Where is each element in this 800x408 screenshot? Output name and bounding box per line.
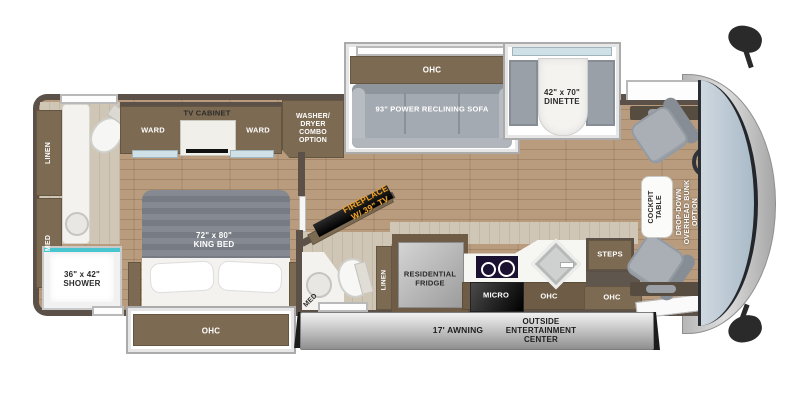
outside-entertainment-label: OUTSIDE ENTERTAINMENT CENTER (506, 317, 576, 345)
cooktop-burner (498, 260, 515, 277)
label-line: SHOWER (63, 279, 100, 288)
sink-faucet (560, 262, 574, 268)
pillow-left (149, 260, 214, 293)
bedroom-slide-window-right (230, 150, 274, 158)
cooktop-burner (481, 262, 496, 277)
label-line: TABLE (656, 191, 664, 224)
label-line: OPTION (692, 180, 700, 244)
sofa-arm-left (352, 88, 365, 144)
pillow-right (217, 260, 282, 293)
nightstand-left (128, 262, 141, 308)
side-mirror-top (725, 22, 764, 55)
label-line: ENTERTAINMENT (506, 326, 576, 335)
label-line: DROP-DOWN (676, 180, 684, 244)
sofa-label: 93" POWER RECLINING SOFA (376, 106, 489, 115)
label-line: COMBO (296, 129, 330, 137)
dash-bottom-radio (646, 285, 676, 293)
dinette-bench-right (586, 60, 615, 126)
bedroom-wall (298, 152, 305, 196)
bottom-left-window (92, 306, 124, 316)
mid-bath-wall-left (296, 230, 303, 314)
label-line: 36" x 42" (63, 270, 100, 279)
king-bed-label: 72" x 80" KING BED (194, 231, 235, 249)
king-bed-mattress (142, 190, 290, 260)
rear-bath-window (60, 94, 118, 104)
sofa-ohc-label: OHC (423, 65, 441, 74)
dinette-bench-left (509, 60, 538, 126)
mid-bath-door (318, 302, 368, 312)
label-line: CENTER (506, 336, 576, 345)
tv-cabinet-label: TV CABINET (184, 110, 231, 119)
overhead-bunk-label: DROP-DOWN OVERHEAD BUNK OPTION (676, 180, 700, 244)
sofa-front (352, 138, 512, 148)
awning-label: 17' AWNING (433, 326, 483, 336)
cab-overhead-window (626, 80, 700, 102)
linen-mid-label: LINEN (380, 270, 387, 291)
label-line: DINETTE (544, 97, 580, 106)
corner-sink (306, 272, 332, 298)
dinette-label: 42" x 70" DINETTE (544, 88, 580, 106)
linen-rear-label: LINEN (45, 142, 53, 164)
dinette-window (512, 47, 612, 56)
label-line: KING BED (194, 240, 235, 249)
label-line: FRIDGE (404, 279, 456, 288)
bedroom-slide-window-left (132, 150, 178, 158)
shower-label: 36" x 42" SHOWER (63, 270, 100, 288)
label-line: OPTION (296, 137, 330, 145)
med-rear-label: MED (45, 235, 53, 251)
ward-right-label: WARD (246, 127, 270, 136)
ward-left-label: WARD (141, 127, 165, 136)
bed-slide-ohc-label: OHC (202, 326, 220, 335)
vanity-sink (65, 212, 89, 236)
entry-ohc-label: OHC (603, 294, 620, 303)
fridge-label: RESIDENTIAL FRIDGE (404, 270, 456, 287)
sofa-back (352, 84, 512, 94)
micro-label: MICRO (483, 292, 509, 301)
cockpit-table-label: COCKPIT TABLE (648, 191, 664, 224)
sofa-slide-window (356, 46, 508, 56)
pocket-door (299, 196, 306, 232)
label-line: WASHER/ (296, 113, 330, 121)
washer-dryer-label: WASHER/ DRYER COMBO OPTION (296, 113, 330, 145)
label-line: OUTSIDE (506, 317, 576, 326)
label-line: 42" x 70" (544, 88, 580, 97)
shower-glass (44, 248, 120, 252)
label-line: OVERHEAD BUNK (684, 180, 692, 244)
label-line: COCKPIT (648, 191, 656, 224)
label-line: 72" x 80" (194, 231, 235, 240)
steps-label: STEPS (597, 251, 623, 260)
kitchen-ohc-label: OHC (540, 293, 557, 302)
rv-floorplan: LINEN MED WARD TV CABINET WARD WASHER/ D… (0, 0, 800, 408)
tv-strip (186, 149, 228, 153)
label-line: DRYER (296, 121, 330, 129)
sofa (352, 84, 512, 148)
